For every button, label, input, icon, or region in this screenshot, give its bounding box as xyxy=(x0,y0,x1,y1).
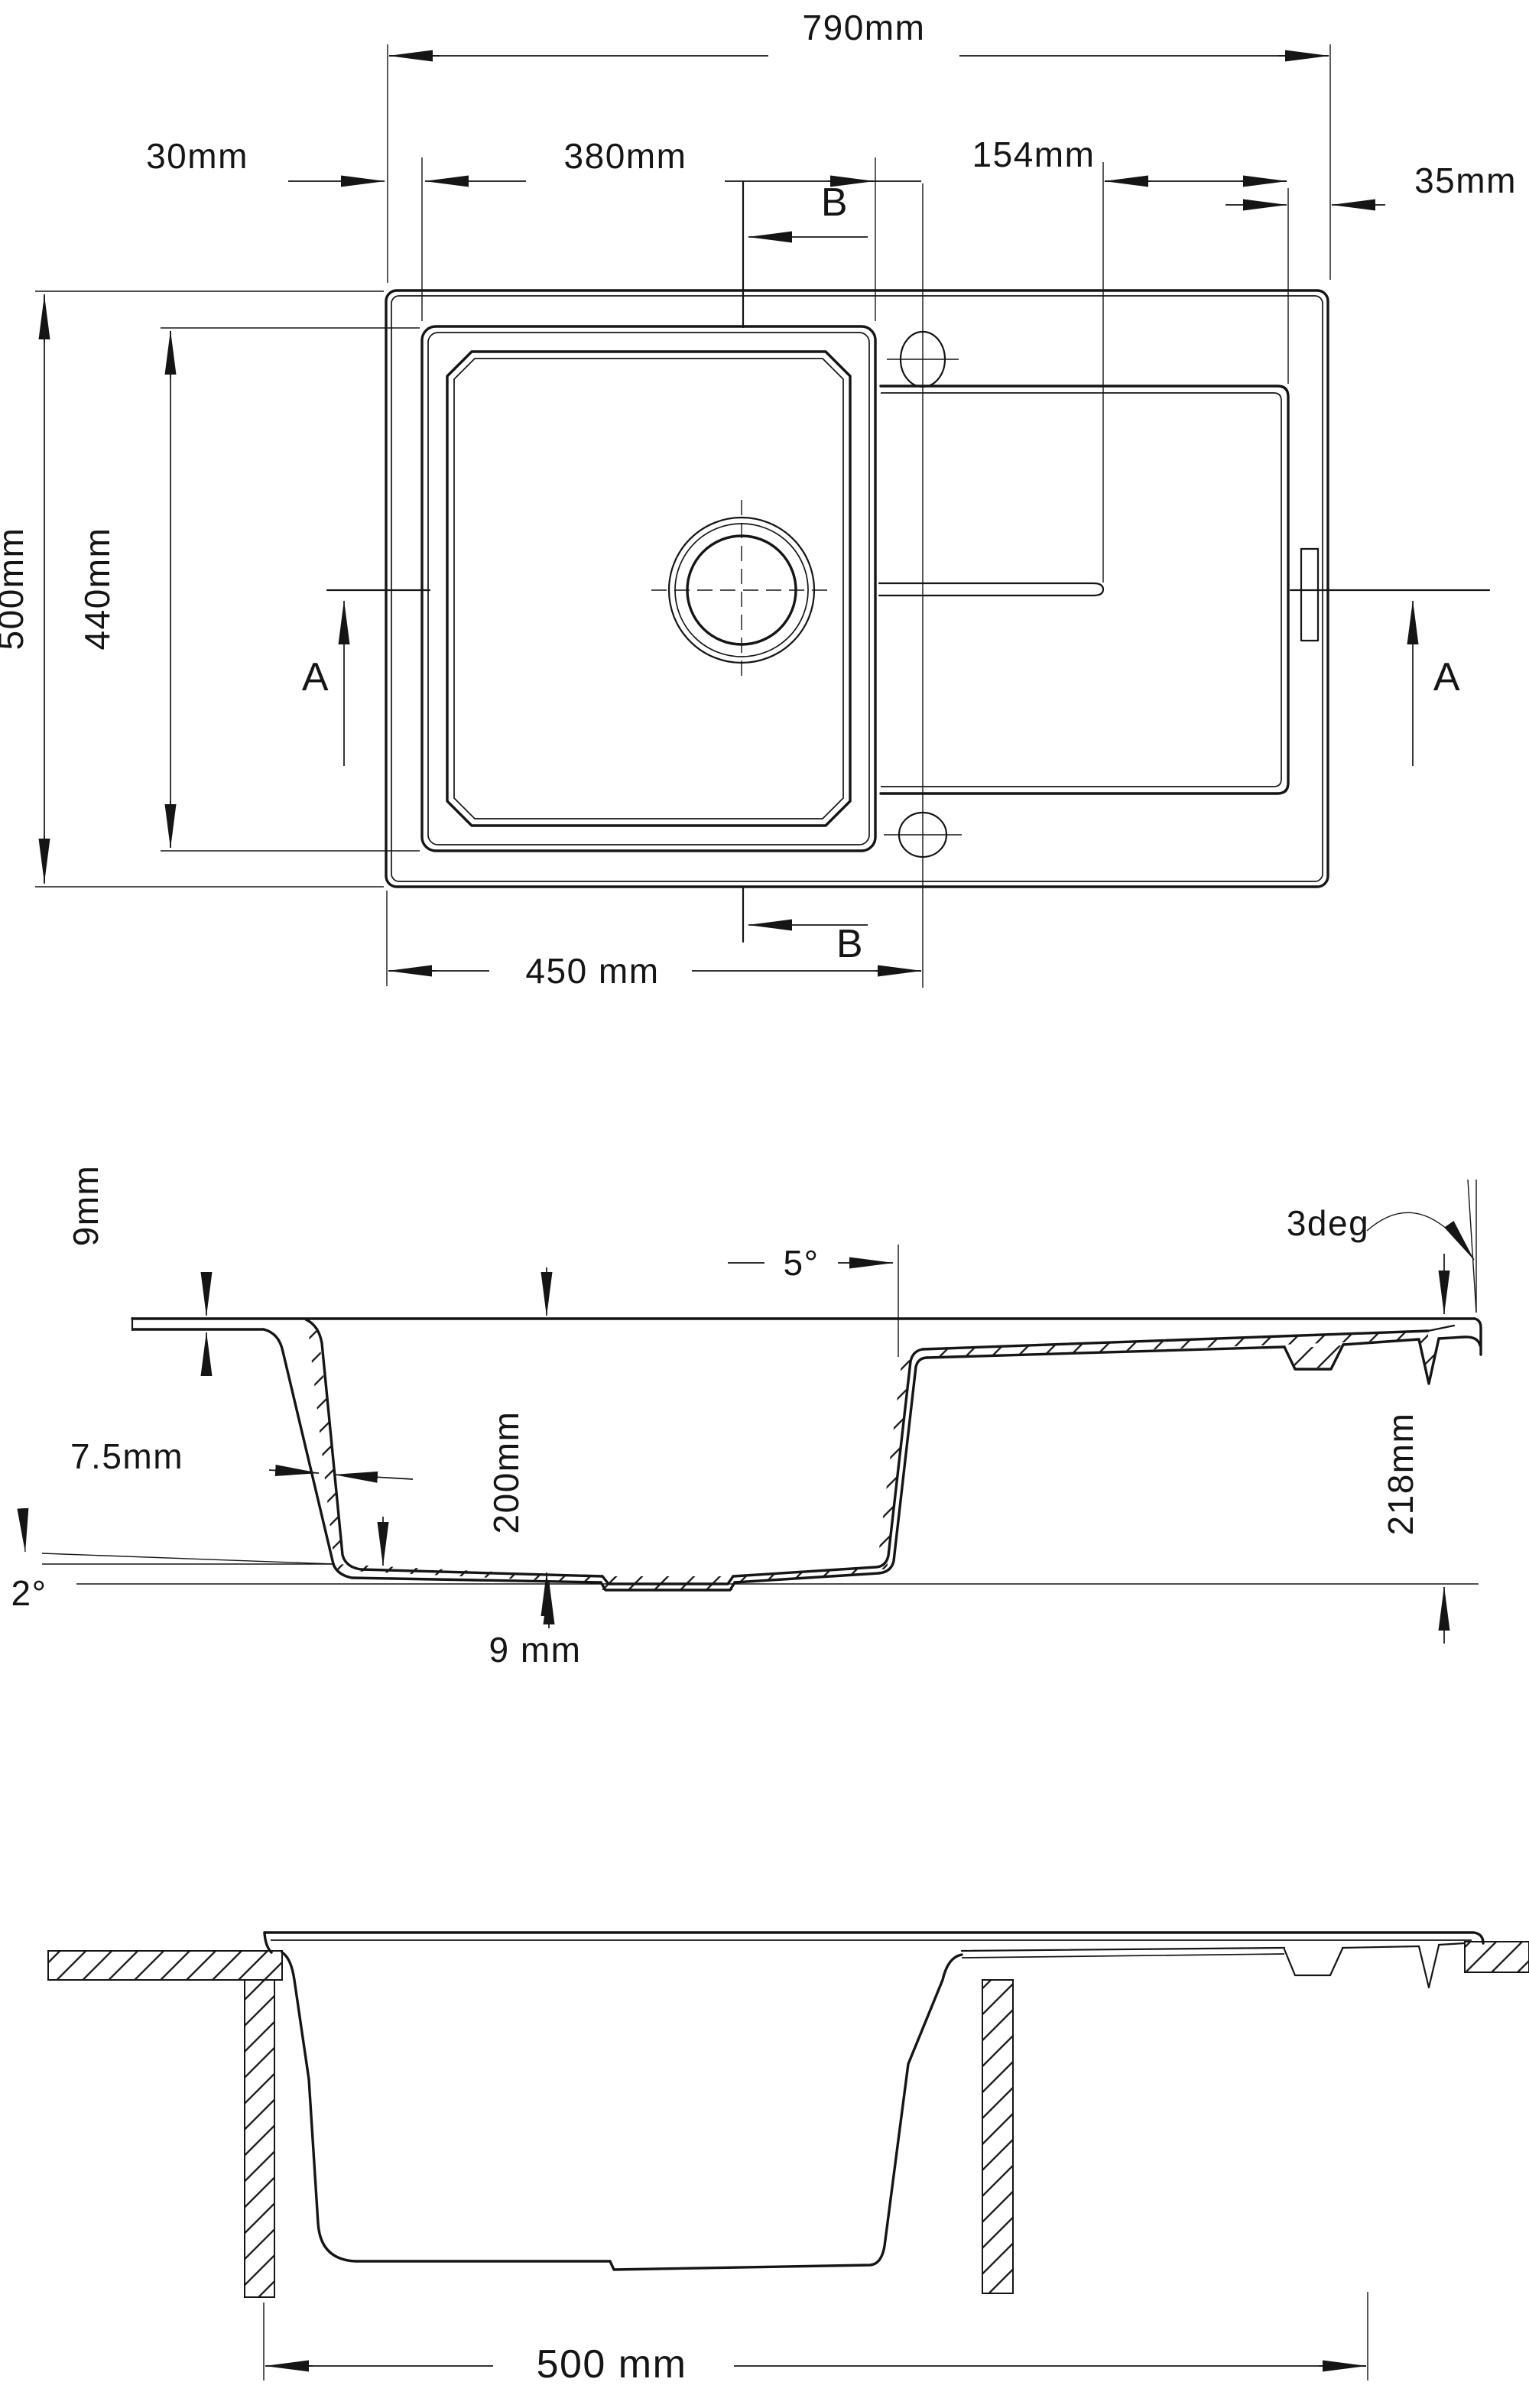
dim-left-offset: 30mm xyxy=(146,136,526,181)
section-b-marker-bottom: B xyxy=(743,888,868,966)
dim-label-bottom-slope: 2° xyxy=(11,1573,47,1613)
dim-right-offset: 35mm xyxy=(1225,161,1517,205)
right-rim-ridge xyxy=(1428,1326,1454,1331)
section-a-marker-right: A xyxy=(1290,590,1489,766)
section-b-marker-top: B xyxy=(743,180,868,327)
dim-wall-thickness: 7.5mm xyxy=(70,1436,413,1479)
drainboard-underside-inner xyxy=(962,1954,1284,1958)
drainboard-outline-inner xyxy=(881,393,1281,787)
section-a-label-right: A xyxy=(1433,655,1461,699)
groove-slot xyxy=(879,583,1103,596)
bowl-rim-outer xyxy=(422,326,875,851)
drainboard-underside xyxy=(962,1948,1284,1951)
dim-rim-thickness: 9mm xyxy=(66,1165,206,1374)
dim-bowl-inner-depth: 200mm xyxy=(486,1267,547,1619)
section-b-label-bottom: B xyxy=(836,922,864,966)
dim-bottom-slope: 2° xyxy=(11,1510,335,1613)
dim-label-wall-thickness: 7.5mm xyxy=(70,1436,183,1476)
drainboard-bottom-line-3 xyxy=(1439,1337,1480,1345)
overflow-slot xyxy=(1301,549,1318,641)
dim-label-overall-depth: 500mm xyxy=(0,527,31,651)
dim-drainboard-slope: 3deg xyxy=(1287,1180,1476,1313)
dim-label-bowl-inner-depth: 200mm xyxy=(486,1411,526,1534)
section-a-marker-left: A xyxy=(302,590,430,766)
dim-label-overall-height: 218mm xyxy=(1381,1413,1420,1536)
countertop-right xyxy=(1465,1942,1529,1972)
drain-mid-ring xyxy=(675,524,808,657)
dim-wall-draft: 5° xyxy=(728,1243,898,1357)
mount-clip-front xyxy=(1419,1946,1439,1988)
underside-segment-2 xyxy=(1342,1946,1419,1948)
top-view: 790mm 30mm 380mm 154mm xyxy=(0,8,1517,991)
dim-groove-offset: 154mm xyxy=(972,135,1288,583)
bowl-inner-left-wall xyxy=(306,1319,602,1576)
dim-label-bowl-centerline: 450 mm xyxy=(525,951,659,991)
dim-label-drainboard-slope: 3deg xyxy=(1287,1203,1369,1243)
drain-hole xyxy=(651,500,832,680)
cabinet-wall-left xyxy=(245,1980,274,2297)
dim-label-bowl-depth: 440mm xyxy=(77,527,117,651)
right-edge-profile xyxy=(1475,1319,1481,1355)
dim-bowl-width: 380mm xyxy=(422,136,921,321)
dim-label-overall-width: 790mm xyxy=(803,8,926,47)
dim-label-left-offset: 30mm xyxy=(146,136,248,176)
sink-outline xyxy=(386,290,1328,887)
section-a-label-left: A xyxy=(302,655,329,699)
section-view: 9mm 7.5mm 200mm 2° 9 mm xyxy=(11,1165,1481,1670)
dim-overall-depth: 500mm xyxy=(0,291,384,887)
dim-bottom-thickness: 9 mm xyxy=(383,1517,582,1670)
dim-label-wall-draft: 5° xyxy=(784,1243,820,1283)
dim-label-bowl-width: 380mm xyxy=(564,136,687,176)
dim-cabinet-width: 500 mm xyxy=(264,2292,1368,2387)
bowl-rim-inner xyxy=(428,333,869,845)
bowl-basin-outer xyxy=(447,352,850,826)
sink-technical-drawing: 790mm 30mm 380mm 154mm xyxy=(0,0,1529,2408)
technical-drawing-page: 790mm 30mm 380mm 154mm xyxy=(0,0,1529,2408)
sink-lip-left xyxy=(265,1933,271,1952)
dim-label-rim-thickness: 9mm xyxy=(66,1165,106,1247)
section-b-label-top: B xyxy=(821,180,849,225)
sink-top-edge xyxy=(265,1933,1483,1943)
dim-overall-width: 790mm xyxy=(388,8,1330,283)
dim-label-bottom-thickness: 9 mm xyxy=(489,1630,582,1670)
dim-label-right-offset: 35mm xyxy=(1414,161,1517,200)
underside-segment-3 xyxy=(1439,1943,1465,1945)
bowl-basin-inner xyxy=(454,359,843,819)
installation-view: 500 mm xyxy=(48,1933,1529,2387)
dim-overall-height: 218mm xyxy=(76,1254,1479,1644)
dim-label-groove-offset: 154mm xyxy=(972,135,1096,174)
cabinet-wall-right xyxy=(982,1980,1013,2293)
bowl-front-profile xyxy=(282,1952,962,2270)
drainboard-outline xyxy=(881,386,1288,793)
countertop-left xyxy=(48,1951,282,1980)
dim-label-cabinet-width: 500 mm xyxy=(537,2342,687,2387)
drainboard-rib-front xyxy=(1284,1949,1342,1975)
